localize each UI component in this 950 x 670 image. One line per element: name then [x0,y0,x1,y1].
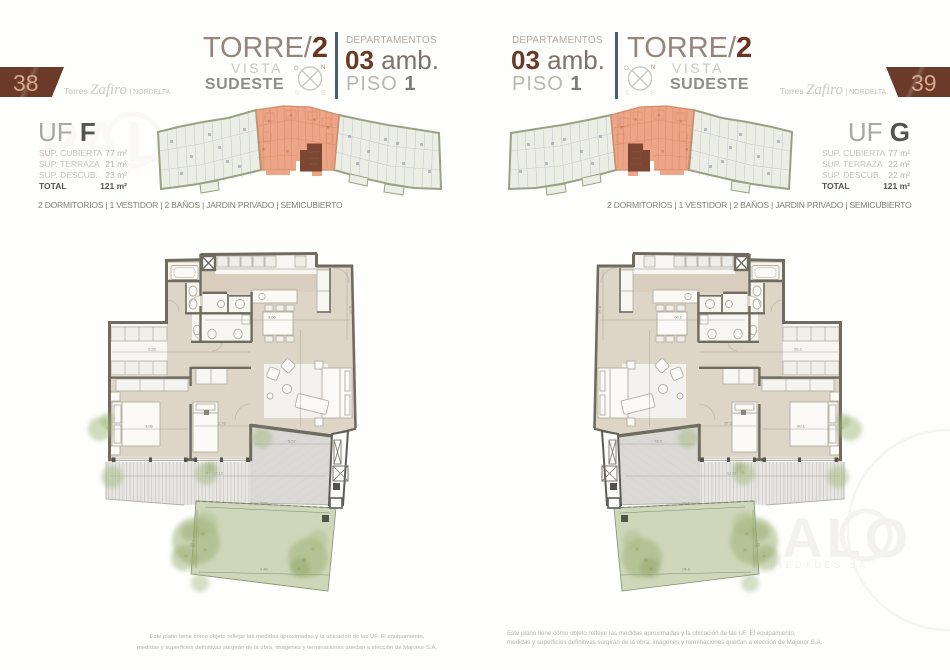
svg-text:O: O [624,66,629,72]
svg-text:5.57: 5.57 [288,439,297,444]
svg-text:N: N [651,65,655,71]
svg-text:9.40: 9.40 [260,567,269,572]
svg-text:S: S [295,91,299,97]
svg-text:E: E [651,91,655,97]
svg-text:E: E [321,91,325,97]
svg-text:N: N [321,65,325,71]
svg-text:S: S [625,91,629,97]
svg-text:2.28: 2.28 [148,347,157,352]
svg-text:7.98: 7.98 [260,501,269,506]
svg-text:3.98: 3.98 [145,424,154,429]
svg-text:PIEDADES SA: PIEDADES SA [770,560,869,570]
svg-text:3.50: 3.50 [268,315,277,320]
svg-text:2.76: 2.76 [218,421,227,426]
svg-text:O: O [294,66,299,72]
